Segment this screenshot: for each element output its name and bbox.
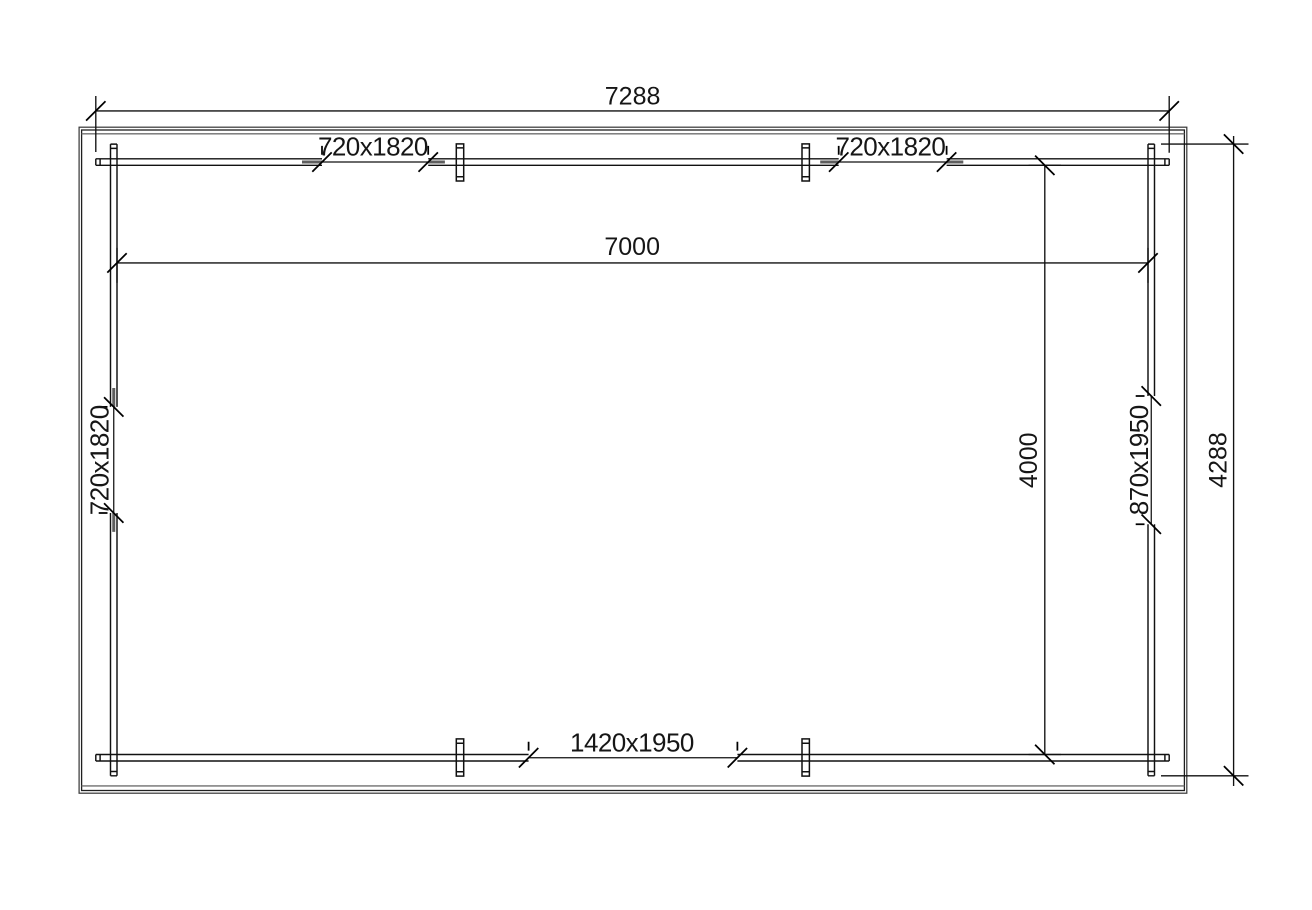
svg-text:7000: 7000: [604, 233, 660, 261]
svg-text:720x1820: 720x1820: [835, 131, 945, 161]
svg-text:7288: 7288: [605, 82, 661, 110]
svg-text:720x1820: 720x1820: [85, 405, 115, 515]
svg-text:4288: 4288: [1204, 432, 1232, 488]
svg-text:4000: 4000: [1015, 432, 1043, 488]
svg-text:1420x1950: 1420x1950: [570, 727, 694, 757]
svg-text:720x1820: 720x1820: [318, 131, 428, 161]
svg-text:870x1950: 870x1950: [1124, 405, 1154, 515]
